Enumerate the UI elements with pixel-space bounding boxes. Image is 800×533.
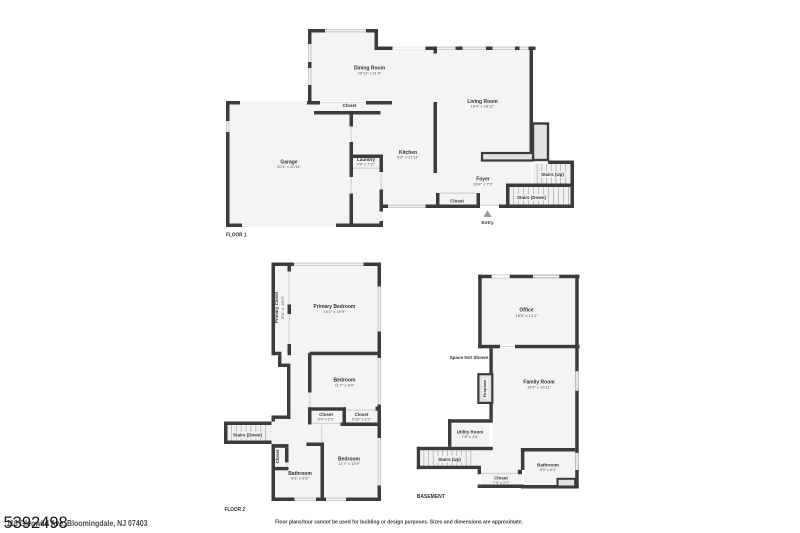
svg-text:Primary Closet: Primary Closet xyxy=(274,291,279,323)
svg-text:Stairs (Up): Stairs (Up) xyxy=(541,172,564,177)
svg-text:Space Not Shown: Space Not Shown xyxy=(450,355,489,360)
svg-text:Entry: Entry xyxy=(481,220,494,226)
svg-text:5’4” x 2’2”: 5’4” x 2’2” xyxy=(318,417,335,421)
svg-text:Fireplace: Fireplace xyxy=(482,379,487,397)
svg-text:7’3” x 2’2”: 7’3” x 2’2” xyxy=(493,481,510,485)
svg-text:FLOOR 1: FLOOR 1 xyxy=(226,232,247,238)
svg-text:FLOOR 2: FLOOR 2 xyxy=(225,507,246,513)
svg-text:9’0” x 17’11”: 9’0” x 17’11” xyxy=(397,155,419,160)
svg-text:16’4” x 7’9”: 16’4” x 7’9” xyxy=(473,182,493,187)
svg-text:Bathroom: Bathroom xyxy=(537,463,559,468)
svg-text:15’2” x 15’9”: 15’2” x 15’9” xyxy=(323,309,346,314)
svg-text:Stairs (Down): Stairs (Down) xyxy=(517,195,547,200)
svg-text:BASEMENT: BASEMENT xyxy=(417,494,446,500)
svg-text:8’1” x 9’3”: 8’1” x 9’3” xyxy=(291,476,309,481)
svg-text:Laundry: Laundry xyxy=(357,157,376,162)
svg-text:14’2” x 16’11”: 14’2” x 16’11” xyxy=(527,385,552,390)
svg-text:5’10” x 2’2”: 5’10” x 2’2” xyxy=(352,417,372,421)
svg-text:8’9” x 6’3”: 8’9” x 6’3” xyxy=(540,468,557,472)
svg-text:11’7” x 12’9”: 11’7” x 12’9” xyxy=(338,461,360,466)
svg-text:Floor plans/tour cannot be use: Floor plans/tour cannot be used for buil… xyxy=(275,520,524,526)
svg-text:Closet: Closet xyxy=(494,475,508,480)
svg-text:Closet: Closet xyxy=(319,412,333,417)
svg-text:16’5” x 12’1”: 16’5” x 12’1” xyxy=(515,313,538,318)
svg-text:Stairs (Up): Stairs (Up) xyxy=(438,457,461,462)
svg-text:7’8” x 4’6”: 7’8” x 4’6” xyxy=(462,435,479,439)
svg-text:11’7” x 9’4”: 11’7” x 9’4” xyxy=(335,383,355,388)
svg-text:Utility Room: Utility Room xyxy=(457,429,484,434)
svg-text:16’4” x 18’11”: 16’4” x 18’11” xyxy=(471,104,496,109)
svg-text:4’9” x 7’11”: 4’9” x 7’11” xyxy=(357,163,376,167)
svg-text:3’5” x 15’0”: 3’5” x 15’0” xyxy=(281,295,285,320)
svg-text:Closet: Closet xyxy=(343,103,357,108)
svg-text:20’11” x 11’8”: 20’11” x 11’8” xyxy=(358,71,382,76)
svg-text:Closet: Closet xyxy=(450,198,464,203)
svg-text:Stairs (Down): Stairs (Down) xyxy=(233,433,263,438)
svg-text:Closet: Closet xyxy=(355,412,369,417)
svg-text:Closet: Closet xyxy=(275,449,280,463)
svg-text:20’1” x 20’11”: 20’1” x 20’11” xyxy=(277,164,302,169)
svg-text:5392498: 5392498 xyxy=(4,514,68,532)
